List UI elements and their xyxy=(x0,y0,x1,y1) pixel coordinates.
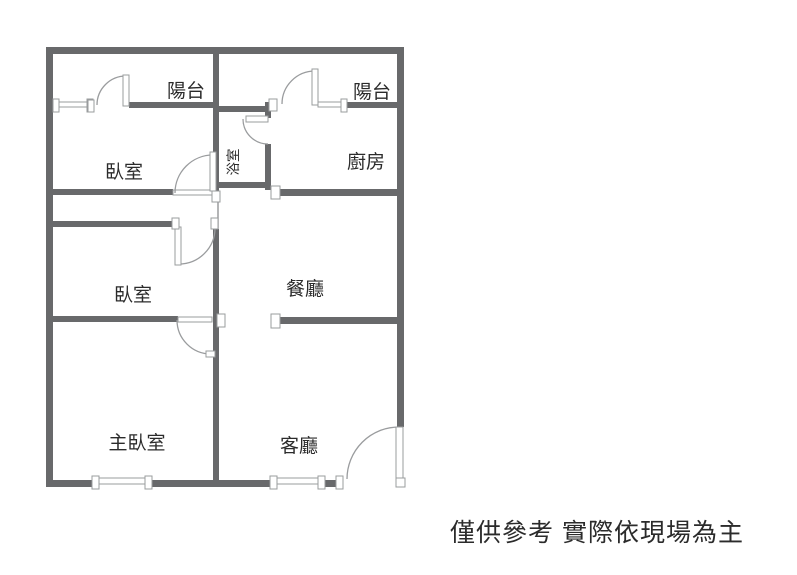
room-label-balcony-right: 陽台 xyxy=(353,81,391,103)
door-bathroom xyxy=(243,116,268,144)
room-label-living-room: 客廳 xyxy=(280,435,318,457)
opening-kitchen xyxy=(271,186,280,199)
floor-plan-page: 陽台 陽台 臥室 浴室 廚房 臥室 餐廳 主臥室 客廳 僅供參考 實際依現場為主 xyxy=(0,0,797,575)
room-label-bedroom-middle: 臥室 xyxy=(114,284,152,306)
door-entrance xyxy=(336,427,405,489)
door-bedroom-top xyxy=(173,152,220,202)
window-balcony-right xyxy=(318,99,347,112)
window-master-bedroom xyxy=(92,476,152,489)
room-label-dining-room: 餐廳 xyxy=(286,278,324,300)
inner-walls xyxy=(53,54,398,480)
disclaimer-text: 僅供參考 實際依現場為主 xyxy=(450,519,744,547)
window-living-room xyxy=(270,476,325,489)
room-label-master-bedroom: 主臥室 xyxy=(108,432,165,454)
floor-plan: 陽台 陽台 臥室 浴室 廚房 臥室 餐廳 主臥室 客廳 僅供參考 實際依現場為主 xyxy=(0,0,797,575)
room-label-balcony-left: 陽台 xyxy=(167,80,205,102)
door-balcony-left xyxy=(88,75,129,112)
room-label-bathroom: 浴室 xyxy=(225,149,241,176)
opening-dining-living xyxy=(271,314,280,328)
window-balcony-left xyxy=(53,99,93,112)
doors xyxy=(88,69,405,489)
outer-walls xyxy=(46,47,404,487)
room-labels: 陽台 陽台 臥室 浴室 廚房 臥室 餐廳 主臥室 客廳 xyxy=(105,80,391,457)
room-label-bedroom-top: 臥室 xyxy=(105,161,143,183)
door-bedroom-middle xyxy=(172,218,218,265)
room-label-kitchen: 廚房 xyxy=(347,150,385,173)
door-balcony-right xyxy=(269,69,318,111)
